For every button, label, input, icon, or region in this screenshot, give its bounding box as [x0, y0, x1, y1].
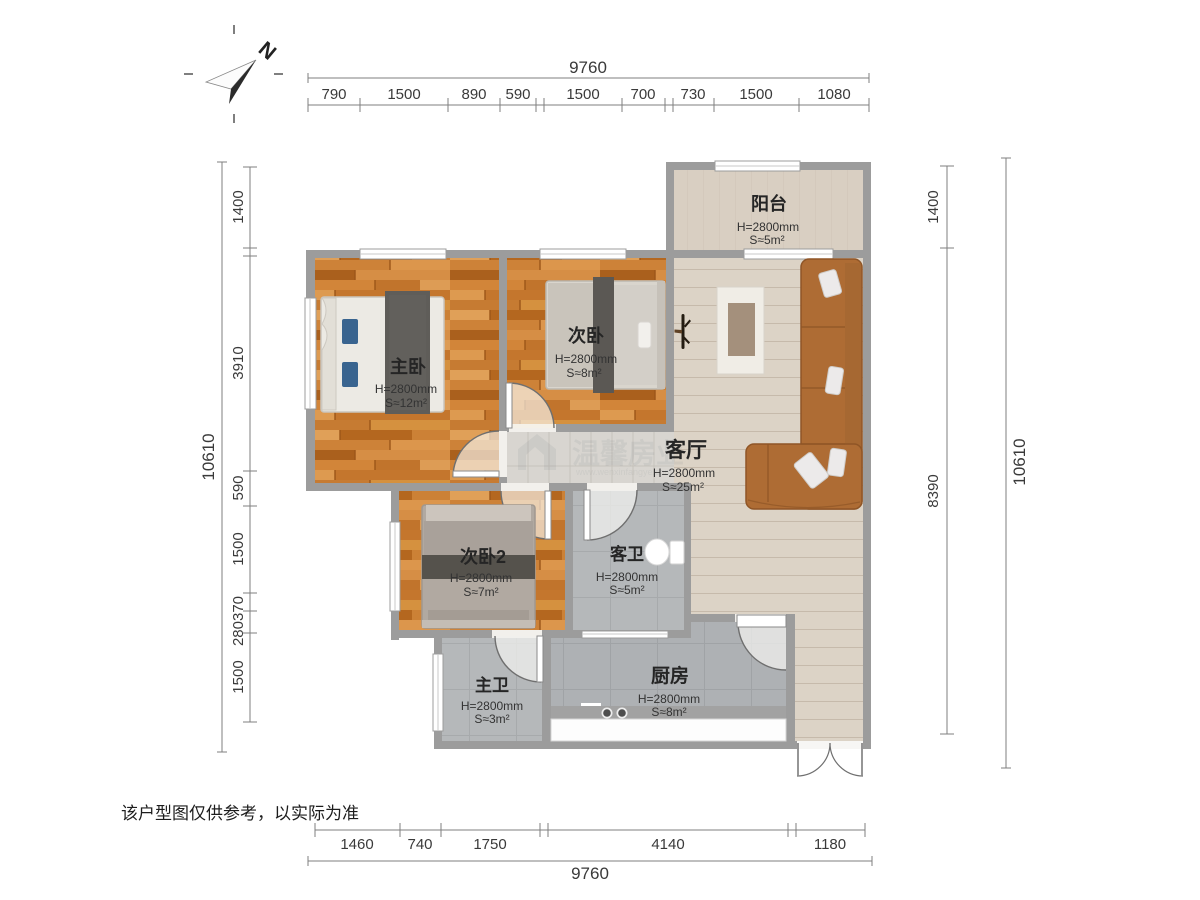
svg-text:S≈3m²: S≈3m²: [474, 712, 509, 726]
svg-text:1400: 1400: [925, 190, 942, 223]
svg-text:H=2800mm: H=2800mm: [653, 466, 715, 480]
svg-text:H=2800mm: H=2800mm: [737, 220, 799, 234]
svg-text:1500: 1500: [566, 86, 599, 103]
svg-text:S≈8m²: S≈8m²: [651, 705, 686, 719]
svg-text:730: 730: [680, 86, 705, 103]
svg-text:700: 700: [630, 86, 655, 103]
svg-text:8390: 8390: [925, 474, 942, 507]
svg-text:1080: 1080: [817, 86, 850, 103]
svg-text:1750: 1750: [473, 836, 506, 853]
svg-text:S≈7m²: S≈7m²: [463, 585, 498, 599]
svg-text:厨房: 厨房: [651, 664, 689, 687]
svg-text:H=2800mm: H=2800mm: [450, 571, 512, 585]
svg-text:9760: 9760: [571, 864, 609, 883]
svg-text:H=2800mm: H=2800mm: [461, 699, 523, 713]
svg-text:590: 590: [505, 86, 530, 103]
svg-text:S≈12m²: S≈12m²: [385, 396, 427, 410]
svg-text:阳台: 阳台: [751, 193, 787, 214]
svg-text:1500: 1500: [230, 660, 247, 693]
svg-text:4140: 4140: [651, 836, 684, 853]
svg-text:10610: 10610: [199, 433, 218, 480]
svg-text:1500: 1500: [739, 86, 772, 103]
svg-text:590: 590: [230, 475, 247, 500]
svg-text:该户型图仅供参考，以实际为准: 该户型图仅供参考，以实际为准: [121, 804, 359, 823]
svg-text:1460: 1460: [340, 836, 373, 853]
svg-text:9760: 9760: [569, 58, 607, 77]
svg-text:1500: 1500: [230, 532, 247, 565]
svg-text:H=2800mm: H=2800mm: [596, 570, 658, 584]
svg-text:1500: 1500: [387, 86, 420, 103]
svg-text:主卫: 主卫: [475, 675, 509, 695]
svg-text:主卧: 主卧: [390, 356, 426, 377]
svg-text:890: 890: [461, 86, 486, 103]
svg-text:S≈25m²: S≈25m²: [662, 480, 704, 494]
svg-text:H=2800mm: H=2800mm: [555, 352, 617, 366]
svg-text:客卫: 客卫: [609, 544, 644, 564]
svg-text:1400: 1400: [230, 190, 247, 223]
svg-text:H=2800mm: H=2800mm: [375, 382, 437, 396]
svg-text:10610: 10610: [1010, 438, 1029, 485]
svg-text:S≈8m²: S≈8m²: [566, 366, 601, 380]
svg-text:280370: 280370: [230, 596, 247, 646]
svg-text:次卧: 次卧: [568, 325, 604, 346]
svg-text:790: 790: [321, 86, 346, 103]
svg-text:1180: 1180: [814, 836, 846, 853]
svg-text:S≈5m²: S≈5m²: [749, 233, 784, 247]
svg-text:客厅: 客厅: [665, 438, 707, 462]
svg-text:次卧2: 次卧2: [460, 546, 506, 567]
svg-text:H=2800mm: H=2800mm: [638, 692, 700, 706]
svg-text:3910: 3910: [230, 346, 247, 379]
svg-text:740: 740: [407, 836, 432, 853]
svg-text:S≈5m²: S≈5m²: [609, 583, 644, 597]
